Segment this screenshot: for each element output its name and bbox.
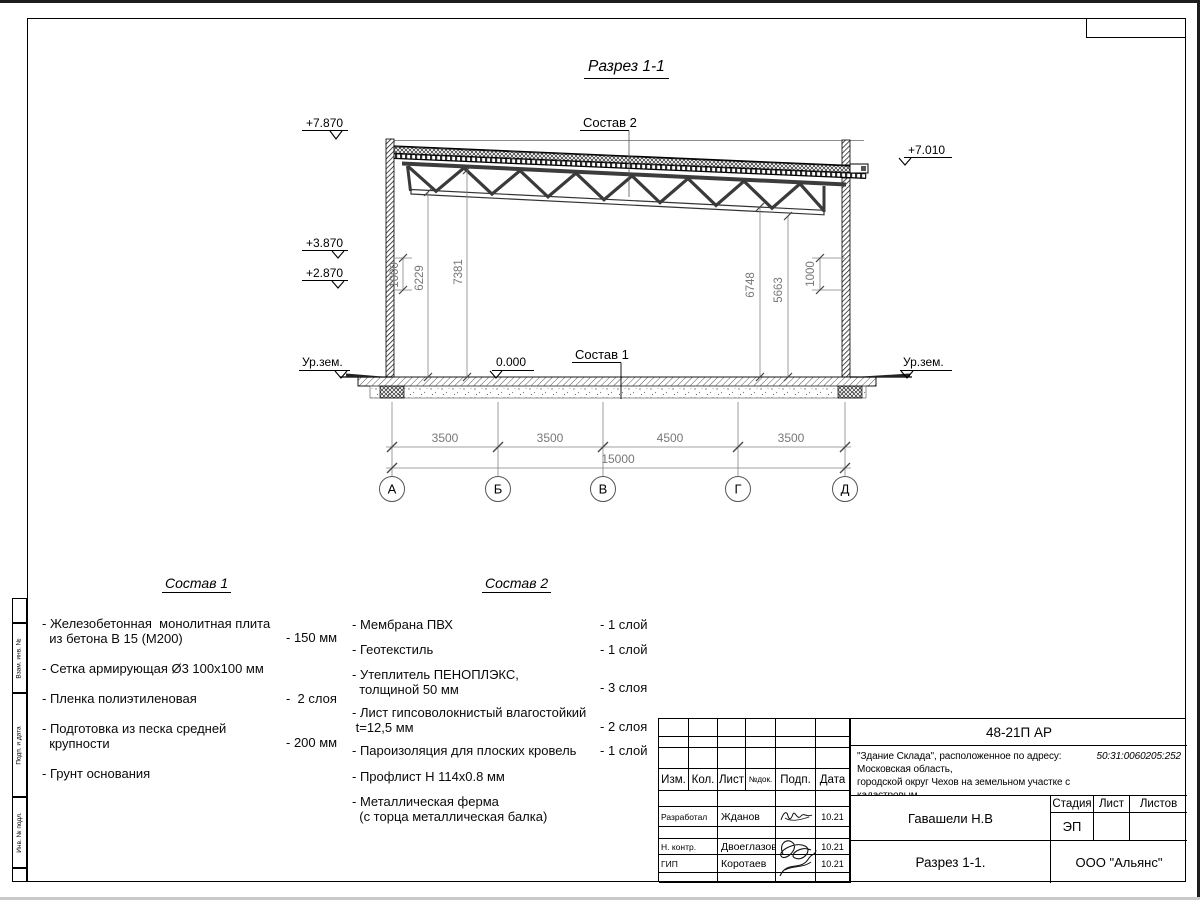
dim-span-3: 4500: [657, 431, 684, 445]
tb-stage-header: Стадия: [1050, 796, 1093, 813]
truss-bottom-chord: [411, 190, 824, 215]
mark-2870: +2.870: [306, 266, 343, 280]
tb-empty-cell: [776, 719, 816, 737]
tb-empty-cell: [816, 827, 850, 839]
tb-empty-cell: [689, 748, 718, 769]
signature-icon: [778, 809, 814, 824]
tb-empty-cell: [746, 719, 776, 737]
tb-empty-cell: [718, 827, 776, 839]
tb-sheet-header: Лист: [1093, 796, 1129, 813]
title-block-revision-grid: Изм. Кол. Лист №док. Подп. Дата Разработ…: [659, 719, 850, 883]
tb-empty-cell: [718, 748, 746, 769]
composition1-value: - 2 слоя: [286, 691, 337, 706]
composition2-value: - 1 слой: [600, 642, 648, 657]
axis-label-b: Б: [494, 482, 503, 497]
tb-col-ndok: №док.: [746, 769, 776, 791]
tb-sheets-header: Листов: [1129, 796, 1187, 813]
elevation-arrow: [330, 131, 342, 139]
tb-document-code: 48-21П АР: [850, 719, 1187, 746]
composition2-title: Состав 2: [482, 575, 551, 593]
elevation-arrow: [899, 158, 911, 165]
tb-col-izm: Изм.: [659, 769, 689, 791]
tb-empty-cell: [689, 719, 718, 737]
mark-zero: 0.000: [496, 355, 526, 369]
tb-sheets-value: [1129, 813, 1187, 841]
dim-span-4: 3500: [778, 431, 805, 445]
mark-ground-left: Ур.зем.: [302, 355, 343, 369]
left-footing-block: [380, 386, 404, 398]
elevation-arrow: [332, 251, 344, 258]
composition2-value: - 1 слой: [600, 617, 648, 632]
tb-name-gip: Коротаев: [718, 855, 776, 873]
tb-empty-cell: [718, 719, 746, 737]
tb-role-ncontrol: Н. контр.: [659, 839, 718, 855]
ground-wedge-left: [346, 374, 388, 378]
concrete-slab-band: [358, 377, 876, 386]
leader-floor-label: Состав 1: [575, 347, 629, 362]
mark-7870: +7.870: [306, 116, 343, 130]
composition1-value: - 150 мм: [286, 630, 337, 645]
tb-stage-value: ЭП: [1050, 813, 1093, 841]
composition1-item: - Пленка полиэтиленовая: [42, 691, 197, 706]
dim-7381: 7381: [453, 259, 465, 285]
composition1-item: - Железобетонная монолитная плита из бет…: [42, 616, 270, 646]
dim-left-1000: 1000: [389, 262, 401, 288]
composition2-item: - Утеплитель ПЕНОПЛЭКС, толщиной 50 мм: [352, 667, 519, 697]
tb-empty-cell: [659, 748, 689, 769]
composition1-item: - Грунт основания: [42, 766, 150, 781]
tb-company: ООО "Альянс": [1050, 841, 1187, 883]
composition2-item: - Лист гипсоволокнистый влагостойкий t=1…: [352, 705, 586, 735]
tb-empty-cell: [776, 737, 816, 748]
dim-6229: 6229: [414, 265, 426, 291]
composition2-item: - Металлическая ферма (с торца металличе…: [352, 794, 547, 824]
dim-span-2: 3500: [537, 431, 564, 445]
title-block: Изм. Кол. Лист №док. Подп. Дата Разработ…: [658, 718, 1186, 882]
tb-empty-cell: [776, 748, 816, 769]
tb-empty-cell: [718, 737, 746, 748]
right-wall: [842, 178, 850, 377]
drawing-sheet: { "page": { "drawing_title": "Разрез 1-1…: [0, 0, 1200, 900]
composition2-item: - Пароизоляция для плоских кровель: [352, 743, 576, 758]
right-parapet: [842, 140, 850, 165]
tb-description-text: "Здание Склада", расположенное по адресу…: [857, 750, 1097, 796]
composition2-value: - 2 слоя: [600, 719, 647, 734]
composition1-title: Состав 1: [162, 575, 231, 593]
composition2-item: - Профлист Н 114х0.8 мм: [352, 769, 505, 784]
tb-project-description: "Здание Склада", расположенное по адресу…: [850, 746, 1187, 796]
left-wall: [386, 139, 394, 377]
tb-role-gip: ГИП: [659, 855, 718, 873]
mark-3870: +3.870: [306, 236, 343, 250]
tb-name-developer: Жданов: [718, 807, 776, 827]
dim-span-1: 3500: [432, 431, 459, 445]
axis-label-d: Д: [841, 482, 850, 497]
tb-empty-cell: [746, 748, 776, 769]
dim-6748: 6748: [745, 272, 757, 298]
dim-5663: 5663: [773, 277, 785, 303]
composition2-value: - 1 слой: [600, 743, 648, 758]
dim-total: 15000: [601, 452, 635, 466]
composition1-item: - Подготовка из песка средней крупности: [42, 721, 226, 751]
tb-col-kol: Кол.: [689, 769, 718, 791]
elevation-arrow: [332, 281, 344, 288]
tb-author-cell: Гавашели Н.В: [850, 796, 1050, 841]
tb-col-data: Дата: [816, 769, 850, 791]
tb-empty-cell: [816, 719, 850, 737]
tb-empty-cell: [689, 737, 718, 748]
axis-label-g: Г: [734, 482, 741, 497]
axis-bubbles: А Б В Г Д: [380, 477, 858, 502]
tb-col-list: Лист: [718, 769, 746, 791]
tb-empty-cell: [659, 719, 689, 737]
composition1-item: - Сетка армирующая Ø3 100х100 мм: [42, 661, 264, 676]
axis-label-v: В: [599, 482, 608, 497]
mark-7010: +7.010: [908, 143, 945, 157]
tb-empty-cell: [718, 791, 776, 807]
tb-date-developer: 10.21: [816, 807, 850, 827]
tb-empty-cell: [776, 791, 816, 807]
tb-cadastral-number: 50:31:0060205:252: [1097, 750, 1182, 763]
roof-edge-anchor: [861, 166, 866, 171]
tb-date-ncontrol: 10.21: [816, 839, 850, 855]
tb-sheet-title: Разрез 1-1.: [850, 841, 1050, 883]
mark-ground-right: Ур.зем.: [903, 355, 944, 369]
horizontal-dimension-labels: 3500 3500 4500 3500 15000: [432, 431, 805, 466]
tb-empty-cell: [659, 827, 718, 839]
dim-right-1000: 1000: [805, 261, 817, 287]
tb-empty-cell: [659, 791, 718, 807]
axis-label-a: А: [388, 482, 397, 497]
tb-empty-cell: [816, 748, 850, 769]
leader-roof-label: Состав 2: [583, 115, 637, 130]
tb-empty-cell: [659, 737, 689, 748]
sand-base-band: [370, 386, 866, 398]
tb-col-podp: Подп.: [776, 769, 816, 791]
tb-empty-cell: [659, 873, 718, 883]
tb-empty-cell: [746, 737, 776, 748]
tb-empty-cell: [816, 791, 850, 807]
tb-signature-developer: [776, 807, 816, 827]
floor-slab: [340, 374, 912, 399]
tb-empty-cell: [816, 873, 850, 883]
composition2-item: - Геотекстиль: [352, 642, 433, 657]
composition2-value: - 3 слоя: [600, 680, 647, 695]
vertical-dimension-labels: 1000 6229 7381 6748 5663 1000: [389, 259, 817, 303]
tb-empty-cell: [718, 873, 776, 883]
composition2-item: - Мембрана ПВХ: [352, 617, 453, 632]
signatures-overlap-icon: [775, 832, 819, 882]
ground-wedge-right: [854, 374, 910, 378]
tb-role-developer: Разработал: [659, 807, 718, 827]
tb-sheet-value: [1093, 813, 1129, 841]
tb-date-gip: 10.21: [816, 855, 850, 873]
tb-name-ncontrol: Двоеглазов: [718, 839, 776, 855]
composition1-value: - 200 мм: [286, 735, 337, 750]
right-footing-block: [838, 386, 862, 398]
tb-empty-cell: [816, 737, 850, 748]
